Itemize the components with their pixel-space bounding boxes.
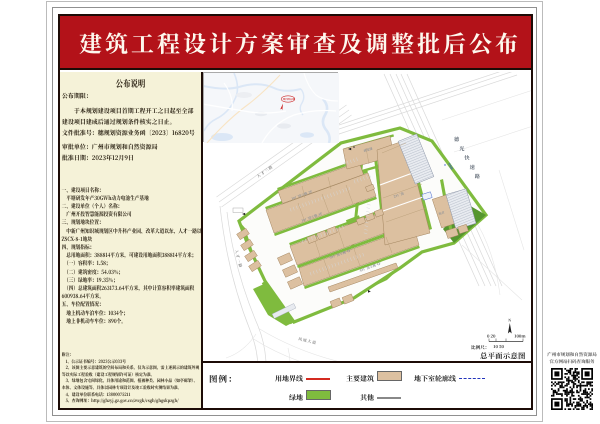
svg-text:0 20: 0 20 xyxy=(487,334,496,340)
svg-text:德: 德 xyxy=(454,136,460,143)
svg-text:凤 凰 大 道: 凤 凰 大 道 xyxy=(298,336,317,346)
svg-text:N: N xyxy=(508,319,511,324)
svg-text:总平面示意图: 总平面示意图 xyxy=(480,351,526,362)
svg-text:100m: 100m xyxy=(514,334,526,340)
svg-text:路: 路 xyxy=(475,173,481,180)
svg-text:快: 快 xyxy=(464,155,470,162)
svg-text:人 才 一 路: 人 才 一 路 xyxy=(233,249,243,268)
svg-text:10 50: 10 50 xyxy=(493,344,504,350)
svg-text:光: 光 xyxy=(459,145,465,152)
svg-text:速: 速 xyxy=(470,164,476,171)
svg-text:项目所在地: 项目所在地 xyxy=(283,97,296,101)
